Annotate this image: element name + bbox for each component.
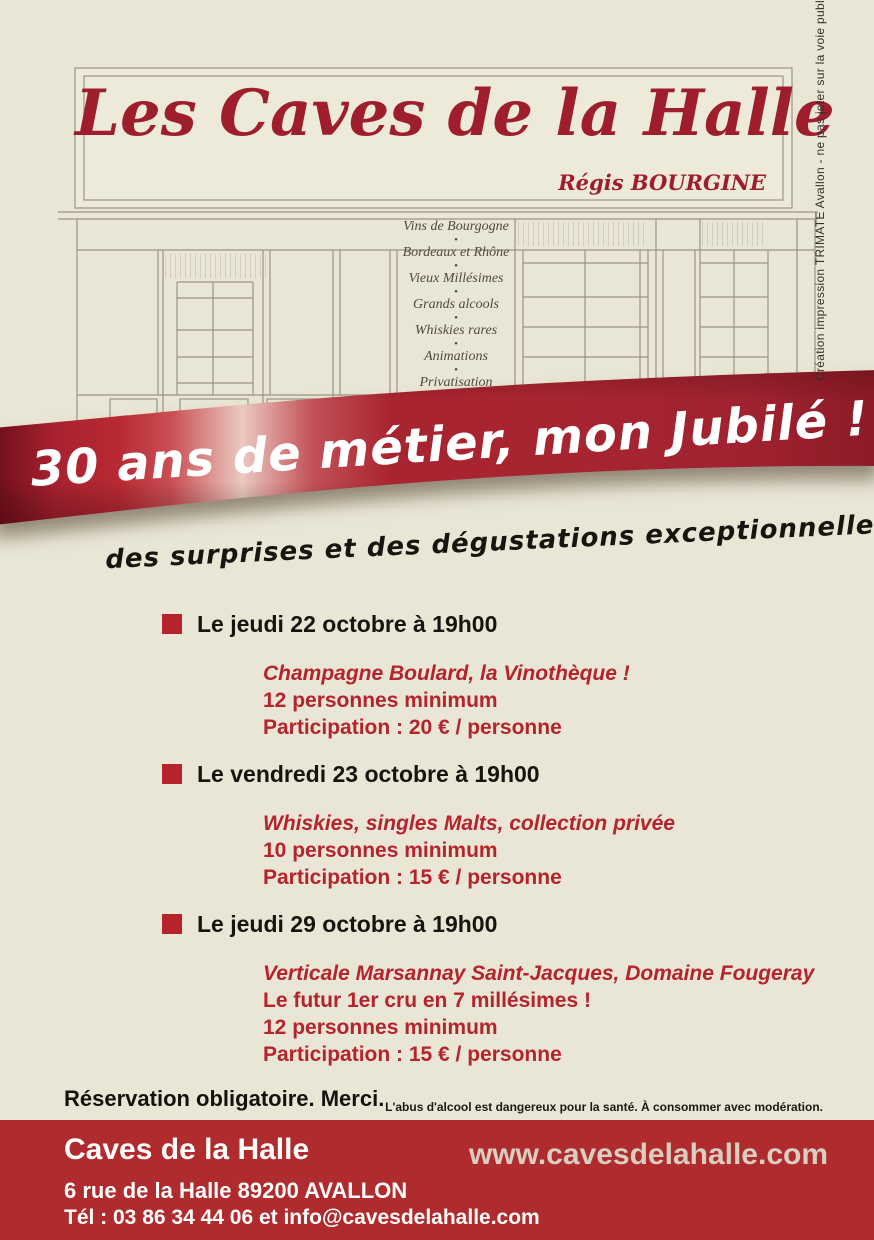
print-credit-vertical-text: Création impression TRIMATE Avallon - ne…	[813, 81, 827, 381]
event-block-oct29: Le jeudi 29 octobre à 19h00 Verticale Ma…	[162, 912, 842, 1068]
event-tasting-title: Verticale Marsannay Saint-Jacques, Domai…	[263, 960, 842, 987]
footer-shop-name: Caves de la Halle	[64, 1133, 309, 1167]
event-tasting-title: Whiskies, singles Malts, collection priv…	[263, 810, 842, 837]
footer-website-url: www.cavesdelahalle.com	[469, 1138, 828, 1172]
alcohol-health-warning: L'abus d'alcool est dangereux pour la sa…	[385, 1100, 823, 1114]
event-price: Participation : 15 € / personne	[263, 864, 842, 891]
event-block-oct22: Le jeudi 22 octobre à 19h00 Champagne Bo…	[162, 612, 842, 741]
event-date: Le jeudi 29 octobre à 19h00	[197, 912, 497, 936]
red-square-bullet-icon	[162, 614, 182, 634]
event-minimum: 12 personnes minimum	[263, 1014, 842, 1041]
shop-owner-name: Régis BOURGINE	[75, 170, 766, 195]
event-price: Participation : 20 € / personne	[263, 714, 842, 741]
service-item: Whiskies rares	[397, 314, 515, 338]
red-square-bullet-icon	[162, 914, 182, 934]
event-date: Le jeudi 22 octobre à 19h00	[197, 612, 497, 636]
service-item: Bordeaux et Rhône	[397, 236, 515, 260]
event-subtitle: Le futur 1er cru en 7 millésimes !	[263, 987, 842, 1014]
service-item: Grands alcools	[397, 288, 515, 312]
flyer-poster: Les Caves de la Halle Régis BOURGINE Vin…	[0, 0, 874, 1240]
reservation-note: Réservation obligatoire. Merci.	[64, 1086, 384, 1112]
event-minimum: 10 personnes minimum	[263, 837, 842, 864]
footer-band: Caves de la Halle 6 rue de la Halle 8920…	[0, 1120, 874, 1240]
event-tasting-title: Champagne Boulard, la Vinothèque !	[263, 660, 842, 687]
event-price: Participation : 15 € / personne	[263, 1041, 842, 1068]
event-minimum: 12 personnes minimum	[263, 687, 842, 714]
service-item: Vieux Millésimes	[397, 262, 515, 286]
red-square-bullet-icon	[162, 764, 182, 784]
event-date: Le vendredi 23 octobre à 19h00	[197, 762, 540, 786]
service-item: Vins de Bourgogne	[397, 220, 515, 234]
footer-address: 6 rue de la Halle 89200 AVALLON	[64, 1178, 407, 1204]
shop-title: Les Caves de la Halle	[75, 82, 792, 146]
event-block-oct23: Le vendredi 23 octobre à 19h00 Whiskies,…	[162, 762, 842, 891]
footer-phone-email: Tél : 03 86 34 44 06 et info@cavesdelaha…	[64, 1206, 540, 1230]
